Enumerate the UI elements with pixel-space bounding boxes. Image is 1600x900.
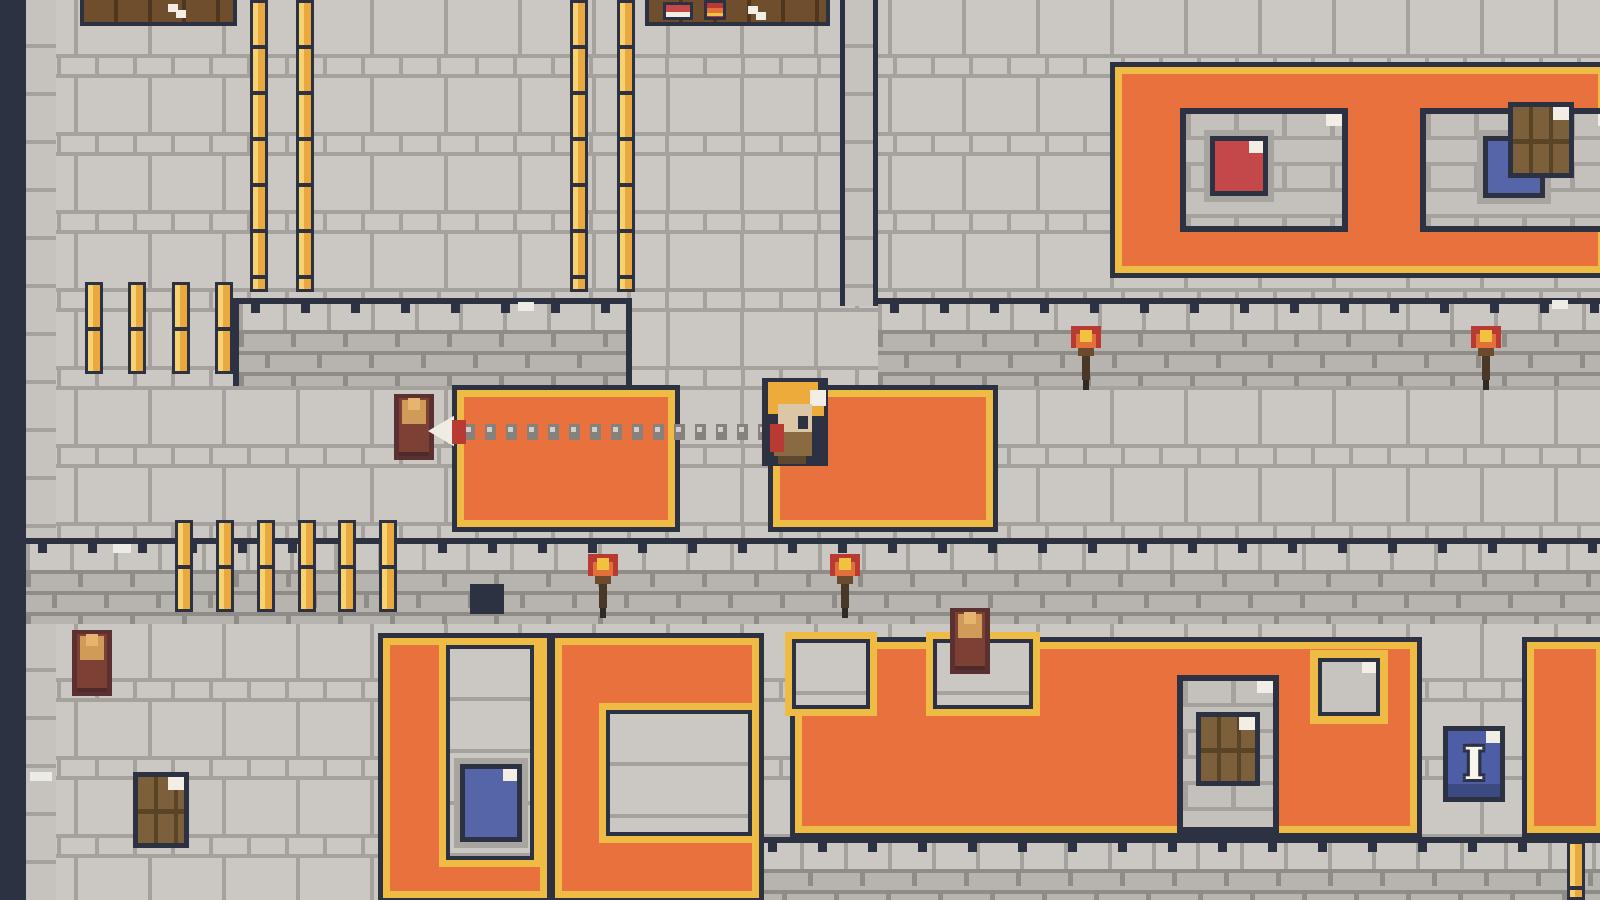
gold-fence-bar [128,282,146,374]
striped-potion-item[interactable] [704,0,726,20]
carpet-bottomright [1522,637,1600,838]
grapple-anchor [770,424,784,452]
gold-fence-bar [379,520,397,612]
gold-fence-bar [215,282,233,374]
torch-icon [588,554,618,618]
red-crate[interactable] [1210,136,1268,196]
wall-column-middle [840,0,878,306]
torch-icon [1471,326,1501,390]
grapple-shaft [452,420,466,444]
wood-door-topright[interactable] [1508,102,1574,178]
floor-highlight [30,772,52,781]
torch-icon [1071,326,1101,390]
gold-fence-bar [257,520,275,612]
gold-fence-bar [338,520,356,612]
shop-table-left [80,0,237,26]
info-sign[interactable]: I [1443,726,1505,802]
clay-pot[interactable] [70,628,114,698]
sparkle-icon [168,4,178,12]
wall-band-shop-south [233,298,632,386]
blue-crate-bottom[interactable] [460,764,522,842]
wall-band-bottom [756,837,1600,900]
floor-highlight [1552,300,1568,309]
gold-fence-bar [298,520,316,612]
gold-fence-bar [250,0,268,292]
stone-notch-main-left [792,639,870,709]
sparkle-icon [748,6,758,14]
stone-notch-bottommid [606,710,752,836]
wood-door-bottomleft[interactable] [133,772,189,848]
wall-hole [470,584,504,614]
gold-fence-bar [175,520,193,612]
carpet-mid-left [452,385,680,532]
wall-edge-column-left [26,0,56,900]
floor-highlight [113,544,131,553]
map-left-void [0,0,26,900]
torch-icon [830,554,860,618]
gold-fence-bar [617,0,635,292]
wood-door-bottom[interactable] [1196,712,1260,786]
game-viewport[interactable]: I [0,0,1600,900]
floor-highlight [518,302,534,311]
gold-fence-bar [172,282,190,374]
gold-fence-bar [570,0,588,292]
gold-fence-bar [85,282,103,374]
gold-fence-bar [1567,841,1585,900]
gold-fence-bar [216,520,234,612]
clay-pot[interactable] [392,392,436,462]
gold-fence-bar [296,0,314,292]
clay-pot[interactable] [948,606,992,676]
red-book-item[interactable] [663,2,693,20]
gray-sign[interactable] [1318,658,1380,716]
grapple-chain [464,424,762,440]
